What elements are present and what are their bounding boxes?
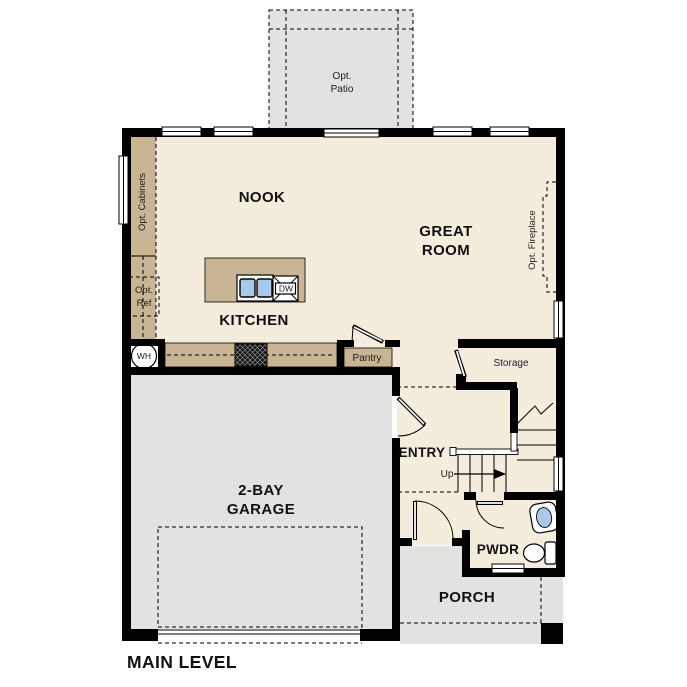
entry-label: ENTRY bbox=[399, 445, 446, 460]
toilet bbox=[524, 542, 557, 564]
pwdr-top-wall bbox=[504, 492, 565, 500]
great-room-label-line2: ROOM bbox=[422, 242, 470, 259]
porch-corner-post bbox=[541, 623, 563, 644]
opt-cabinets-label: Opt. Cabinets bbox=[137, 173, 148, 231]
window bbox=[554, 301, 563, 338]
right-exterior-wall bbox=[556, 128, 565, 576]
sink-bowl-left bbox=[240, 279, 255, 297]
water-heater: WH bbox=[132, 344, 157, 369]
window bbox=[492, 564, 524, 573]
opt-patio-label-line2: Patio bbox=[331, 84, 354, 95]
railing-newel bbox=[450, 448, 456, 456]
stairs-up-label: Up bbox=[441, 469, 454, 480]
floor-plan-page: DW WH bbox=[0, 0, 687, 687]
floor-plan-drawing: DW WH bbox=[0, 0, 687, 687]
opt-fireplace-label: Opt. Fireplace bbox=[527, 210, 538, 270]
opt-patio-label-line1: Opt. bbox=[333, 71, 352, 82]
dishwasher-box: DW bbox=[273, 276, 298, 301]
page-title: MAIN LEVEL bbox=[127, 652, 237, 672]
window bbox=[162, 127, 201, 136]
window bbox=[490, 127, 529, 136]
water-heater-label: WH bbox=[137, 351, 151, 361]
pwdr-sink bbox=[529, 501, 560, 534]
garage-label-line1: 2-BAY bbox=[238, 482, 284, 499]
sink-bowl-right bbox=[257, 279, 272, 297]
storage-label: Storage bbox=[493, 358, 528, 369]
dishwasher-label: DW bbox=[279, 284, 293, 294]
garage-bottom-wall-left bbox=[122, 629, 158, 641]
kitchen-label: KITCHEN bbox=[219, 312, 288, 329]
kitchen-garage-wall bbox=[126, 367, 400, 375]
garage-bottom-wall-right bbox=[360, 629, 400, 641]
window bbox=[433, 127, 472, 136]
front-wall bbox=[392, 538, 412, 546]
great-room-label-line1: GREAT bbox=[419, 223, 472, 240]
storage-stair-wall bbox=[456, 382, 517, 390]
porch-label: PORCH bbox=[439, 589, 495, 606]
opt-ref-label-line1: Opt. bbox=[135, 285, 153, 296]
window bbox=[554, 457, 563, 491]
nook-label: NOOK bbox=[239, 189, 286, 206]
garage-right-wall bbox=[392, 367, 400, 396]
stair-railing bbox=[452, 449, 518, 455]
patio-slider-door bbox=[324, 129, 379, 137]
opt-ref-label-line2: Ref bbox=[137, 298, 152, 309]
pantry-label: Pantry bbox=[353, 353, 382, 364]
great-room-storage-wall bbox=[458, 339, 565, 348]
range bbox=[235, 344, 267, 366]
garage-label-line2: GARAGE bbox=[227, 501, 295, 518]
window bbox=[214, 127, 253, 136]
pwdr-label: PWDR bbox=[477, 542, 519, 557]
window bbox=[119, 156, 128, 224]
